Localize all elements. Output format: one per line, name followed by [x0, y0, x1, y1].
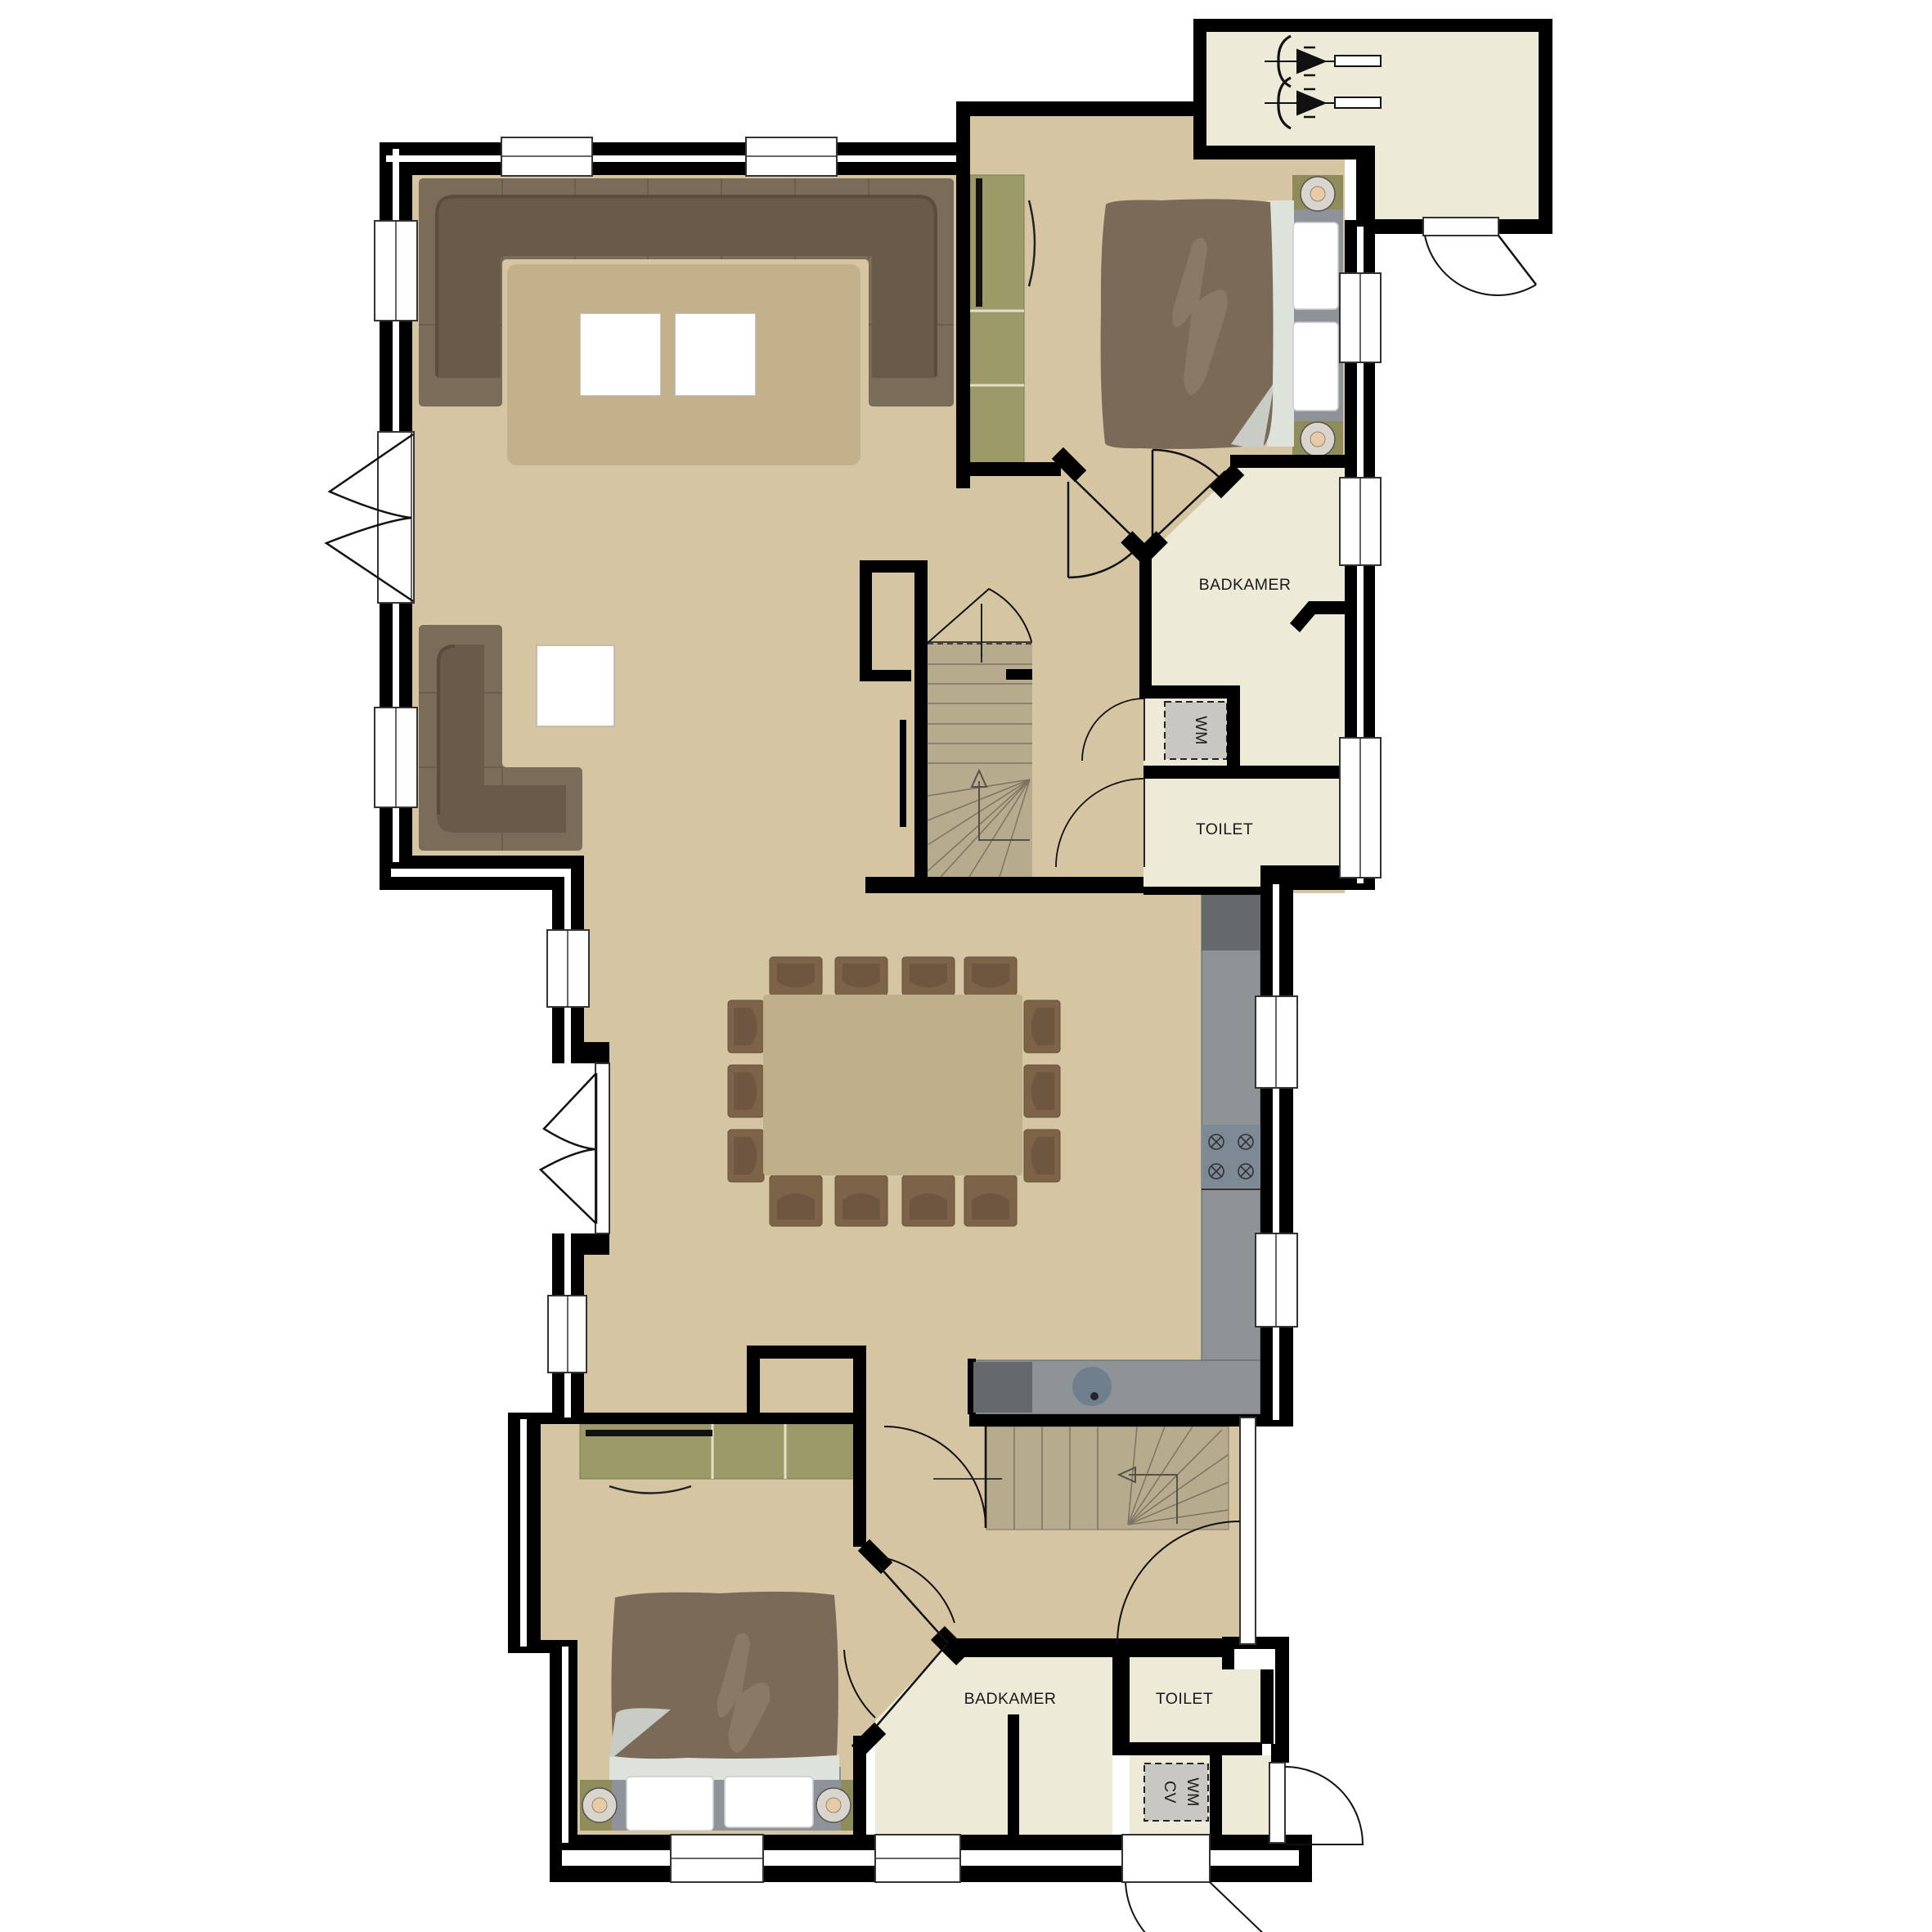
svg-text:BADKAMER: BADKAMER [1199, 576, 1292, 594]
svg-text:WM: WM [1192, 716, 1210, 744]
svg-text:WM: WM [1184, 1777, 1202, 1806]
svg-text:TOILET: TOILET [1156, 1690, 1213, 1708]
svg-text:TOILET: TOILET [1196, 820, 1253, 838]
svg-text:BADKAMER: BADKAMER [964, 1690, 1057, 1708]
svg-text:CV: CV [1161, 1781, 1179, 1804]
